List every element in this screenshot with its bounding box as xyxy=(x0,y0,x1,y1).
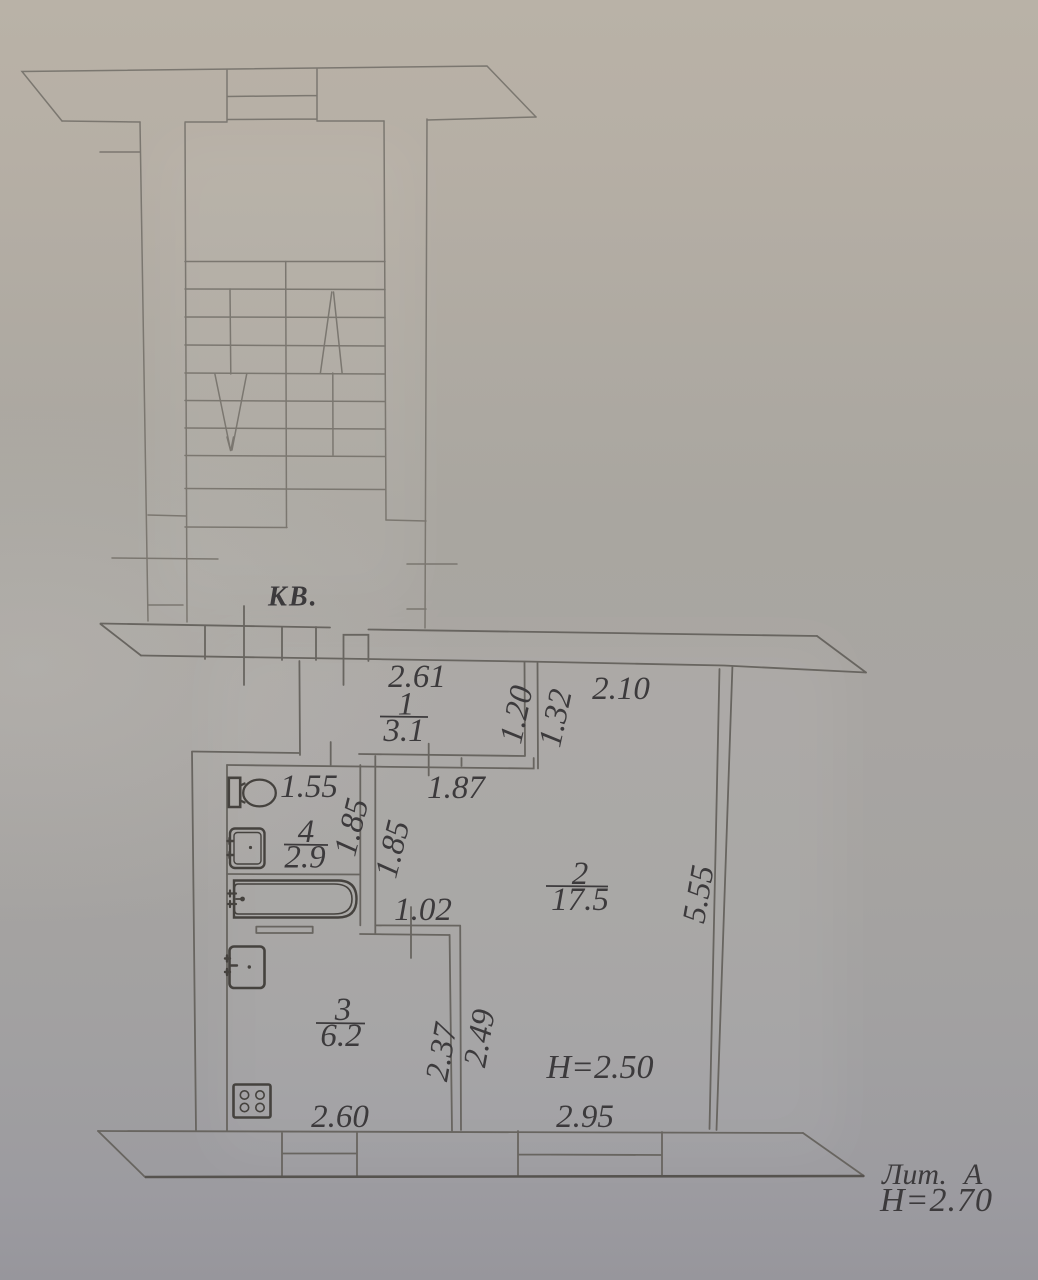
svg-text:2.60: 2.60 xyxy=(311,1099,369,1135)
svg-text:6.2: 6.2 xyxy=(320,1018,361,1054)
svg-text:2.61: 2.61 xyxy=(388,659,446,695)
svg-text:1.55: 1.55 xyxy=(280,769,338,805)
svg-text:17.5: 17.5 xyxy=(551,882,609,918)
svg-text:Н=2.70: Н=2.70 xyxy=(879,1182,993,1219)
svg-text:2.9: 2.9 xyxy=(284,840,325,876)
svg-text:КВ.: КВ. xyxy=(267,582,319,613)
svg-text:1.87: 1.87 xyxy=(427,770,486,806)
svg-text:2.10: 2.10 xyxy=(592,671,650,707)
svg-text:3.1: 3.1 xyxy=(382,713,424,749)
svg-text:2.95: 2.95 xyxy=(556,1099,614,1135)
svg-text:Н=2.50: Н=2.50 xyxy=(546,1049,654,1086)
svg-text:1.02: 1.02 xyxy=(394,892,452,928)
